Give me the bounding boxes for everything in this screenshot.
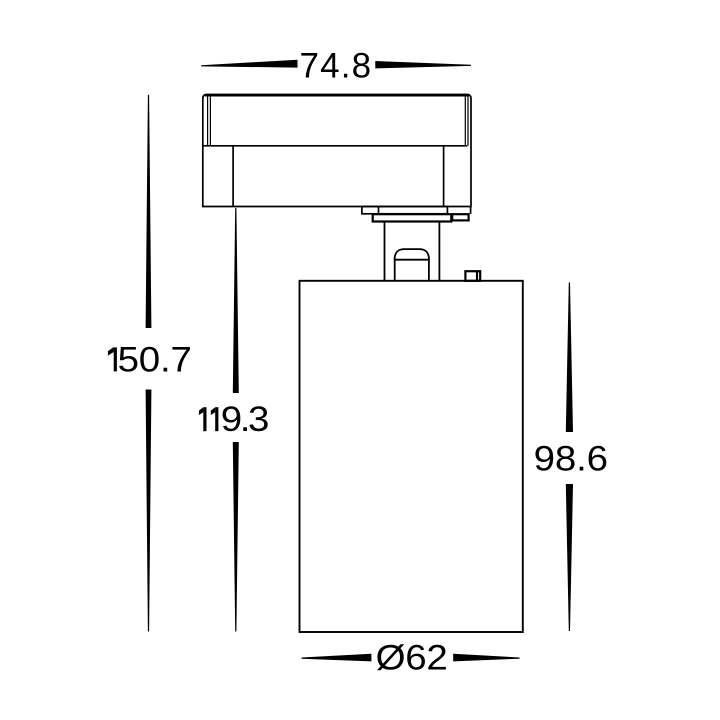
svg-text:98.6: 98.6 <box>534 439 608 478</box>
svg-text:50.7: 50.7 <box>118 340 192 379</box>
svg-text:9.3: 9.3 <box>221 400 268 439</box>
svg-text:74.8: 74.8 <box>300 46 373 85</box>
svg-text:Ø62: Ø62 <box>376 638 448 677</box>
